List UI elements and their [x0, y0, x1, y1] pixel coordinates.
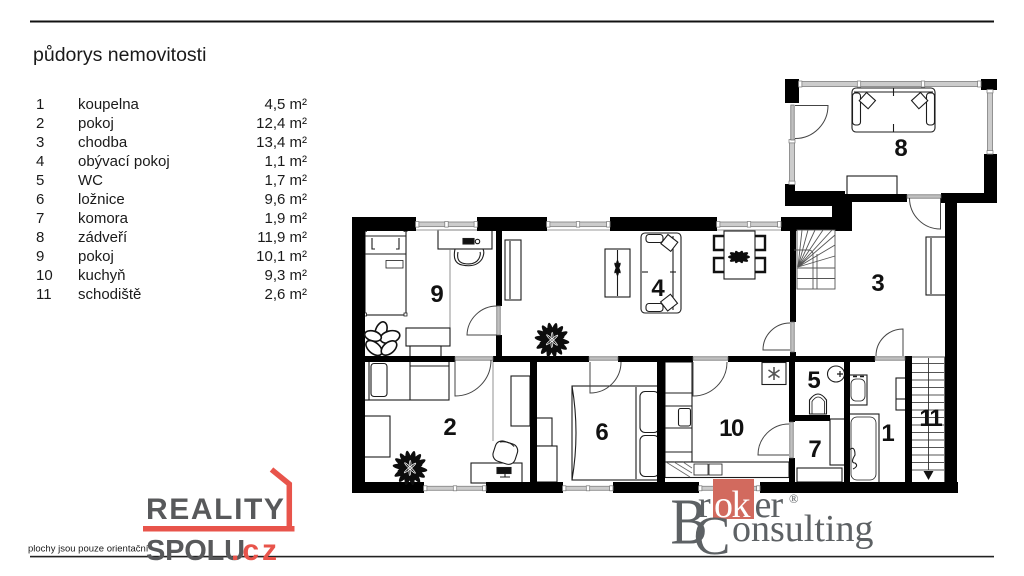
svg-text:plochy jsou pouze orientační: plochy jsou pouze orientační — [28, 544, 149, 555]
svg-text:2,6 m²: 2,6 m² — [264, 286, 307, 303]
svg-text:1: 1 — [881, 420, 894, 447]
svg-text:1,7 m²: 1,7 m² — [264, 172, 307, 189]
svg-text:9: 9 — [36, 248, 44, 265]
svg-text:.cz: .cz — [231, 534, 280, 567]
svg-text:11,9 m²: 11,9 m² — [257, 229, 307, 246]
svg-text:2: 2 — [443, 414, 456, 441]
svg-text:zádveří: zádveří — [78, 229, 128, 246]
svg-text:9,6 m²: 9,6 m² — [264, 191, 307, 208]
svg-text:6: 6 — [36, 191, 44, 208]
svg-text:5: 5 — [36, 172, 44, 189]
svg-text:7: 7 — [36, 210, 44, 227]
svg-text:9,3 m²: 9,3 m² — [264, 267, 307, 284]
svg-text:8: 8 — [894, 135, 907, 162]
svg-text:chodba: chodba — [78, 134, 128, 151]
svg-text:11: 11 — [36, 286, 52, 303]
svg-text:schodiště: schodiště — [78, 286, 141, 303]
svg-text:7: 7 — [808, 436, 821, 463]
svg-text:3: 3 — [36, 134, 44, 151]
svg-text:koupelna: koupelna — [78, 96, 140, 113]
svg-text:12,4 m²: 12,4 m² — [256, 115, 307, 132]
svg-text:6: 6 — [595, 419, 608, 446]
svg-text:onsulting: onsulting — [732, 508, 873, 550]
svg-text:4: 4 — [36, 153, 44, 170]
svg-text:8: 8 — [36, 229, 44, 246]
svg-text:3: 3 — [871, 270, 884, 297]
svg-text:1: 1 — [36, 96, 44, 113]
svg-text:4: 4 — [651, 275, 665, 302]
svg-text:kuchyň: kuchyň — [78, 267, 126, 284]
svg-text:pokoj: pokoj — [78, 115, 114, 132]
svg-text:9: 9 — [430, 281, 443, 308]
svg-text:komora: komora — [78, 210, 129, 227]
svg-text:4,5 m²: 4,5 m² — [264, 96, 307, 113]
svg-text:obývací pokoj: obývací pokoj — [78, 153, 170, 170]
svg-text:WC: WC — [78, 172, 103, 189]
svg-text:1,1 m²: 1,1 m² — [264, 153, 307, 170]
svg-text:13,4 m²: 13,4 m² — [256, 134, 307, 151]
svg-text:půdorys nemovitosti: půdorys nemovitosti — [33, 44, 206, 66]
svg-text:®: ® — [789, 492, 799, 506]
svg-text:2: 2 — [36, 115, 44, 132]
svg-text:5: 5 — [807, 367, 820, 394]
svg-text:10,1 m²: 10,1 m² — [256, 248, 307, 265]
svg-text:REALITY: REALITY — [146, 493, 286, 526]
svg-text:10: 10 — [36, 267, 53, 284]
svg-text:C: C — [694, 505, 731, 566]
svg-text:1,9 m²: 1,9 m² — [264, 210, 307, 227]
svg-text:pokoj: pokoj — [78, 248, 114, 265]
svg-text:11: 11 — [919, 405, 942, 432]
svg-text:10: 10 — [719, 415, 744, 442]
svg-text:ložnice: ložnice — [78, 191, 125, 208]
